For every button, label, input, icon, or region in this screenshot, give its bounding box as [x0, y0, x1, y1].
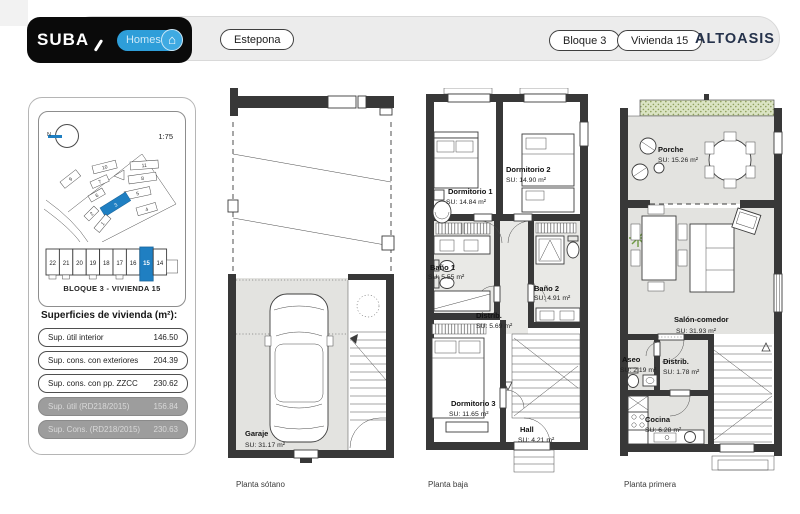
svg-text:11: 11 [142, 163, 148, 169]
plan-caption-baja: Planta baja [428, 480, 468, 489]
room-label: Dormitorio 1 [448, 187, 493, 196]
svg-text:17: 17 [116, 261, 123, 267]
floorplan-baja: Dormitorio 1 SU: 14.84 m² Dormitorio 2 S… [418, 88, 596, 478]
site-block-3-selected[interactable]: 3 [100, 192, 131, 216]
surface-value: 230.62 [154, 379, 178, 388]
site-block-1: 1 [94, 214, 111, 233]
room-label: Dormitorio 2 [506, 165, 551, 174]
surface-label: Sup. cons. con pp. ZZCC [48, 379, 138, 388]
window [524, 94, 566, 102]
surface-value: 156.84 [154, 402, 178, 411]
homes-badge[interactable]: Homes ⌂ [117, 30, 182, 51]
compass-north-label: N [47, 132, 51, 138]
suba-logo[interactable]: SUBA Homes ⌂ [27, 17, 192, 63]
surface-label: Sup. Cons. (RD218/2015) [48, 425, 140, 434]
room-label: Baño 2 [534, 284, 559, 293]
garage-gate [328, 96, 356, 108]
plan-caption-primera: Planta primera [624, 480, 676, 489]
window-railing [520, 88, 568, 94]
window-railing [444, 88, 492, 94]
radiator [536, 223, 576, 233]
surfaces-list: Sup. útil interior 146.50 Sup. cons. con… [38, 328, 188, 439]
surface-value: 146.50 [154, 333, 178, 342]
terrace-steps [712, 456, 774, 470]
site-block-8: 8 [128, 172, 157, 184]
porch-floor [628, 116, 774, 204]
radiator [436, 223, 462, 234]
surface-row: Sup. cons. con exteriores 204.39 [38, 351, 188, 370]
room-label: Cocina [645, 415, 671, 424]
scale-label: 1:75 [158, 132, 173, 141]
svg-text:20: 20 [76, 261, 83, 267]
unit-cell-22[interactable]: 22 [46, 249, 59, 279]
plan-caption-sotano: Planta sótano [236, 480, 285, 489]
logo-slash-icon [94, 39, 103, 51]
site-block-11: 11 [130, 160, 158, 170]
opening [774, 132, 782, 154]
unit-cell-16[interactable]: 16 [126, 249, 139, 275]
site-block-9: 9 [60, 170, 81, 189]
unit-cell-14[interactable]: 14 [153, 249, 166, 275]
room-label: Dormitorio 3 [451, 399, 496, 408]
corner-artifact [0, 0, 28, 26]
surface-row-highlighted: Sup. Cons. (RD218/2015) 230.63 [38, 420, 188, 439]
room-area: SU: 4.91 m² [534, 295, 571, 302]
room-label: Garaje [245, 429, 268, 438]
site-block-7: 7 [90, 175, 109, 189]
altoasis-logo: ALTOASIS [695, 31, 775, 47]
surface-label: Sup. cons. con exteriores [48, 356, 138, 365]
surface-row: Sup. útil interior 146.50 [38, 328, 188, 347]
room-area: SU: 6.28 m² [645, 427, 682, 434]
radiator [464, 223, 490, 234]
room-label: Porche [658, 145, 683, 154]
surface-label: Sup. útil interior [48, 333, 104, 342]
svg-text:16: 16 [130, 261, 137, 267]
room-area: SU: 2.19 m² [620, 367, 657, 374]
surface-row: Sup. cons. con pp. ZZCC 230.62 [38, 374, 188, 393]
room-label: Distrib. [476, 311, 502, 320]
window [580, 122, 588, 146]
svg-text:19: 19 [90, 261, 97, 267]
unit-strip: 22 21 20 19 18 17 16 15 14 [44, 244, 182, 284]
vivienda-pill[interactable]: Vivienda 15 [617, 30, 702, 51]
room-label: Hall [520, 425, 534, 434]
terrace-door [720, 444, 754, 452]
surface-value: 204.39 [154, 356, 178, 365]
floorplan-primera: Porche SU: 15.26 m² Salón-comedor SU: 31… [612, 88, 790, 478]
surfaces-title: Superficies de vivienda (m²): [41, 310, 177, 321]
room-area: SU: 11.65 m² [449, 411, 489, 418]
distrib-floor [500, 221, 528, 334]
site-block-10: 10 [92, 160, 117, 174]
block-title: BLOQUE 3 - VIVIENDA 15 [39, 284, 185, 293]
location-pill[interactable]: Estepona [220, 29, 294, 50]
room-area: SU: 31.17 m² [245, 442, 286, 449]
room-area: SU: 14.90 m² [506, 177, 547, 184]
surface-value: 230.63 [154, 425, 178, 434]
site-block-2: 2 [84, 206, 99, 221]
svg-text:22: 22 [49, 261, 56, 267]
site-map-panel: N 1:75 9 10 11 7 8 6 5 4 3 2 1 [38, 111, 186, 307]
unit-cell-21[interactable]: 21 [59, 249, 72, 279]
svg-text:21: 21 [63, 261, 70, 267]
room-area: SU: 14.84 m² [446, 199, 487, 206]
door-arc [506, 390, 524, 408]
svg-text:18: 18 [103, 261, 110, 267]
stairs [350, 295, 386, 448]
site-block-wedge [114, 170, 124, 180]
stair-floor [708, 334, 774, 444]
site-block-6: 6 [88, 188, 106, 202]
planter [640, 100, 774, 116]
room-area: SU: 4.21 m² [518, 437, 555, 444]
window [774, 274, 782, 312]
site-plan: 9 10 11 7 8 6 5 4 3 2 1 [44, 154, 182, 242]
unit-strip-end-notch [167, 260, 178, 273]
home-icon: ⌂ [161, 29, 183, 51]
svg-text:14: 14 [157, 261, 164, 267]
surface-row-highlighted: Sup. útil (RD218/2015) 156.84 [38, 397, 188, 416]
room-area: SU: 5.55 m² [428, 274, 465, 281]
sofa-icon [690, 224, 734, 292]
svg-text:15: 15 [143, 261, 150, 267]
unit-cell-19[interactable]: 19 [86, 249, 99, 279]
unit-cell-18[interactable]: 18 [100, 249, 113, 275]
unit-cell-20[interactable]: 20 [73, 249, 86, 275]
driveway-ramp [228, 122, 394, 276]
homes-label: Homes [117, 34, 161, 46]
floorplan-sotano: Garaje SU: 31.17 m² [222, 88, 400, 478]
stairs [504, 334, 580, 418]
surface-label: Sup. útil (RD218/2015) [48, 402, 129, 411]
room-area: SU: 15.26 m² [658, 157, 699, 164]
site-block-4: 4 [136, 202, 157, 215]
room-label: Aseo [622, 355, 641, 364]
unit-cell-15-selected[interactable]: 15 [140, 247, 153, 281]
room-label: Salón-comedor [674, 315, 729, 324]
logo-text: SUBA [37, 30, 89, 50]
sidebar-panel: N 1:75 9 10 11 7 8 6 5 4 3 2 1 [28, 97, 196, 455]
room-area: SU: 31.93 m² [676, 328, 717, 335]
entrance-steps [514, 450, 554, 472]
room-label: Distrib. [663, 357, 689, 366]
room-label: Baño 1 [430, 263, 455, 272]
car-icon [265, 294, 333, 442]
bloque-pill[interactable]: Bloque 3 [549, 30, 620, 51]
room-area: SU: 1.78 m² [663, 369, 700, 376]
room-area: SU: 5.69 m² [476, 323, 513, 330]
window [448, 94, 490, 102]
unit-cell-17[interactable]: 17 [113, 249, 126, 279]
